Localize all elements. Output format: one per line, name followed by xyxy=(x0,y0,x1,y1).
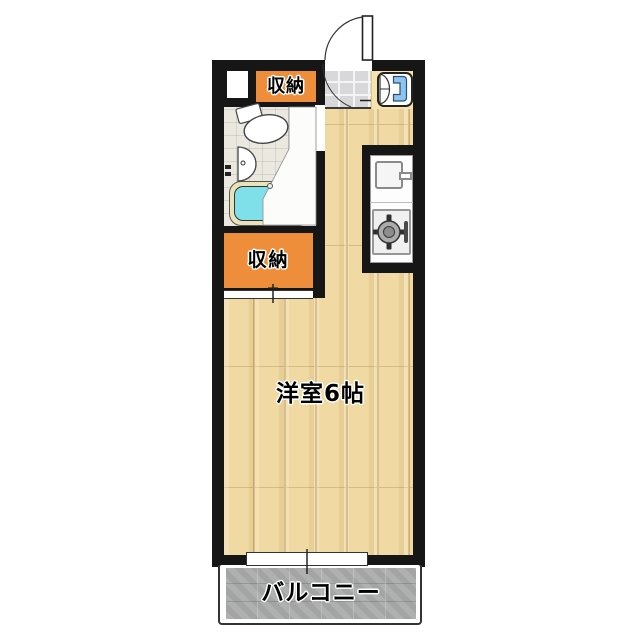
balcony: バルコニー xyxy=(218,563,422,625)
balcony-floor: バルコニー xyxy=(226,568,416,619)
bathtub-icon xyxy=(229,181,311,226)
bathtub-water xyxy=(234,186,306,221)
main-room-label-wrap: 洋室6帖 xyxy=(228,383,413,406)
gas-stove-icon xyxy=(372,209,411,255)
balcony-label: バルコニー xyxy=(261,582,381,605)
closet-top: 収納 xyxy=(256,71,316,102)
balcony-window xyxy=(246,552,368,566)
entrance-tile-floor xyxy=(325,71,371,109)
washing-machine-icon xyxy=(377,72,413,107)
bathroom-door-opening xyxy=(315,105,325,151)
main-room-label: 洋室6帖 xyxy=(276,381,365,407)
kitchen-counter-divider xyxy=(370,202,413,203)
closet-middle-label: 収納 xyxy=(247,251,289,270)
kitchen-faucet-icon xyxy=(399,172,412,180)
closet-sliding-door xyxy=(224,290,313,299)
floor-plan: 収納 収納 バルコニー 洋室6帖 xyxy=(0,0,640,640)
closet-top-label: 収納 xyxy=(267,78,305,96)
meter-box xyxy=(227,71,248,98)
closet-middle: 収納 xyxy=(224,233,313,288)
